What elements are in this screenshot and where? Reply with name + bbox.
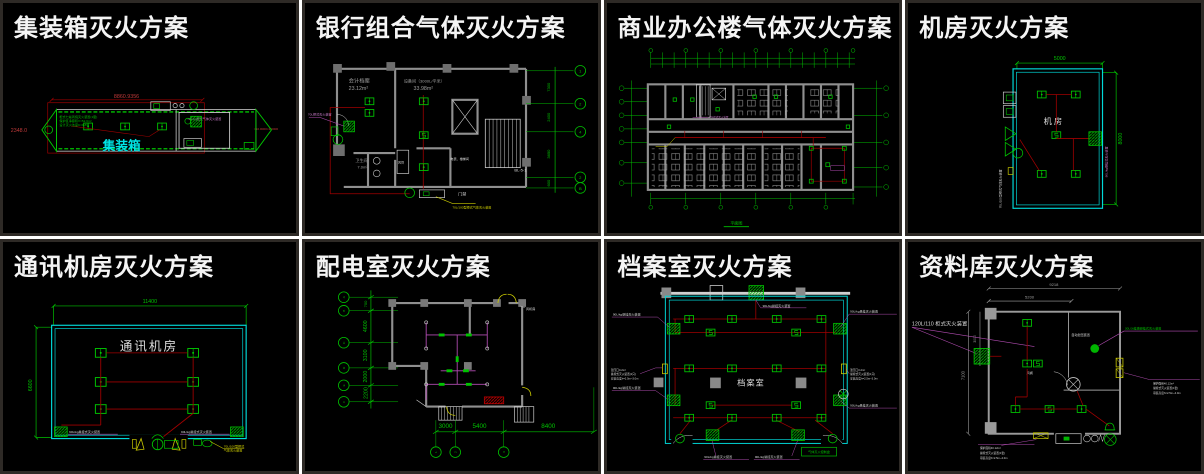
axis-bubble: 2 <box>453 451 457 453</box>
door-label: 门禁 <box>458 191 466 197</box>
piping: 风阀 <box>990 319 1110 426</box>
dim-right: 8000 <box>1118 133 1124 145</box>
label-left-mid: 泄压口0.2m² <box>610 367 625 371</box>
note-bottom: 吊装高度h=2.5m~4.0m <box>980 455 1008 459</box>
panel-container[interactable]: 集装箱灭火方案 8860.9356 2348.0 ≈10.0000×1.0000 <box>0 0 299 236</box>
axis-dim: 3100 <box>363 349 369 361</box>
note-bottom: 保护面积40.12m² <box>980 446 1001 450</box>
dimensions: 8860.9356 2348.0 ≈10.0000×1.0000 <box>11 94 279 153</box>
device-label-left: 70L/100型柜式气体灭火装置 <box>998 169 1003 208</box>
door-note-line1: 70L/100型柜式 <box>224 443 245 448</box>
device-label-right: 90L/kg悬挂式灭火装置 <box>1104 146 1109 177</box>
panel-power-room[interactable]: 配电室灭火方案 A B C D E F 700 4600 3100 2000 2… <box>302 239 601 474</box>
walls: 风机房 <box>388 294 535 422</box>
door-arc <box>446 406 455 415</box>
panel-bank[interactable]: 银行组合气体灭火方案 会计档案 23.12m² 设备间（3000L/ <box>302 0 601 236</box>
panel-data-room[interactable]: 资料库灭火方案 9218 5200 7100 3000 <box>905 239 1204 474</box>
label-left-bottom: 90L/kg悬挂灭火装置 <box>612 385 640 390</box>
room3-name: 卫生间 <box>355 157 367 163</box>
dimensions: 5000 8000 <box>1015 56 1124 206</box>
axis-dim: 700 <box>363 299 368 306</box>
piping <box>61 348 198 436</box>
dim-top: 11400 <box>143 299 157 305</box>
room-labels: 会计档案 23.12m² 设备间（3000L/平米） 33.98m² 卫生间 7… <box>348 76 527 196</box>
axis-bubble: B <box>579 186 582 191</box>
device-label-left: 90L/kg悬挂式灭火装置 <box>69 428 100 433</box>
dim-top-inner: 5200 <box>1025 294 1035 299</box>
note-line: 设计灭火浓度C=9.8% <box>59 122 89 127</box>
note-bottom: 悬挂式灭火装置(1套) <box>980 451 1005 455</box>
door-arc <box>522 387 531 396</box>
ref-label: BL-5-1 <box>514 167 527 172</box>
hatched-device <box>191 116 202 127</box>
label-right-mid: 安装高度h=2.5m~3.0m <box>850 376 878 380</box>
room-label: 通讯机房 <box>120 338 178 353</box>
control-label: 气体灭火控制盘 <box>808 449 830 454</box>
axis-bubble: D <box>342 366 346 369</box>
axis-bubble: A <box>342 295 346 298</box>
cabinet-label: 120L/110 柜式灭火装置 <box>912 319 968 327</box>
panel-title: 集装箱灭火方案 <box>14 8 189 43</box>
dim-left-inner: 3000 <box>973 334 977 342</box>
left-axis: A B C D E F 700 4600 3100 2000 2200 <box>338 290 398 408</box>
piping: 90L/kg悬挂式灭火装置 <box>1020 91 1109 177</box>
room2-area: 33.98m² <box>413 86 433 92</box>
piping <box>330 95 428 194</box>
vent-grille <box>484 396 503 403</box>
panel-machine-room[interactable]: 机房灭火方案 5000 8000 机房 90L/kg悬挂式灭火 <box>905 0 1204 236</box>
bottom-devices: 保护面积40.12m² 悬挂式灭火装置(1套) 吊装高度h=2.5m~4.0m <box>978 423 1116 460</box>
room-label: 机房 <box>1044 116 1064 126</box>
label-left-mid: 安装高度h=2.5m~3.0m <box>610 376 638 380</box>
axis-dim: 2400 <box>546 112 551 122</box>
label-top: 90L/kg悬挂灭火装置 <box>762 302 790 307</box>
walls <box>985 307 1120 435</box>
room1-name: 会计档案 <box>348 76 370 84</box>
panel-archive[interactable]: 档案室灭火方案 档案室 <box>604 239 903 474</box>
label-right-mid: 泄压口0.2m² <box>850 367 865 371</box>
damper-label: 风阀 <box>1027 370 1033 375</box>
door-and-devices: 70L/100型柜式气体灭火装置 <box>998 92 1023 208</box>
room-label: 档案室 <box>737 377 765 387</box>
drawing-board: 集装箱灭火方案 8860.9356 2348.0 ≈10.0000×1.0000 <box>0 0 1204 474</box>
piping <box>673 300 835 434</box>
door-note-line2: 气体灭火装置 <box>224 447 243 452</box>
bottom-dim: 8400 <box>541 422 555 429</box>
fan-room-label: 风机房 <box>526 305 535 310</box>
axis-bubble: C <box>342 340 346 343</box>
panel-title: 档案室灭火方案 <box>618 247 793 282</box>
axis-bubble: E <box>342 384 346 386</box>
panel-comm-room[interactable]: 通讯机房灭火方案 11400 6600 通讯机房 <box>0 239 299 474</box>
note-right: 保护面积40.12m² <box>1153 381 1174 385</box>
axis-bubble: B <box>342 309 346 311</box>
duct-label: 风管 <box>398 160 404 165</box>
hatched-device <box>344 121 355 132</box>
hatched-device <box>748 285 763 300</box>
axis-dim: 3650 <box>546 149 551 159</box>
dimensions: 11400 6600 <box>28 299 248 440</box>
axis-dim: 2200 <box>363 387 369 399</box>
axis-dim: 7300 <box>546 82 551 92</box>
label-right-mid: 悬挂式灭火装置(1只) <box>850 372 875 376</box>
vent-label: 自动泄压装置 <box>1072 331 1091 336</box>
axis-bubble: 2 <box>579 102 582 107</box>
axis-bubble: 3 <box>502 451 506 453</box>
caption-text: 平面图 <box>730 220 742 226</box>
hatched-device <box>231 426 244 436</box>
label-right-top: 90L/kg悬挂灭火装置 <box>850 308 878 313</box>
axis-bubble: 1 <box>434 451 438 453</box>
dim-right: ≈10.0000×1.0000 <box>254 127 278 131</box>
notes: 柜式七氟丙烷灭火装置(1套) 保护区净容积V=52.6m³ 设计灭火浓度C=9.… <box>59 114 97 127</box>
axis-bubble: 2 <box>579 175 582 180</box>
axis-dim: 600 <box>546 179 551 186</box>
bottom-axis: 3000 5400 8400 1 2 3 <box>430 387 596 457</box>
stairs <box>485 119 520 167</box>
bottom-dim: 5400 <box>472 422 486 429</box>
panel-title: 商业办公楼气体灭火方案 <box>618 8 893 43</box>
axis-bubble: 4 <box>579 130 582 135</box>
dim-left-outer: 7100 <box>961 370 966 380</box>
label-bottom-right: 90L/kg悬挂灭火装置 <box>754 453 782 458</box>
hatched-device <box>1089 132 1102 146</box>
dim-left: 6600 <box>28 379 34 391</box>
dim-left: 2348.0 <box>11 128 27 134</box>
bottom-dim: 3000 <box>438 422 452 429</box>
dim-top: 8860.9356 <box>114 94 139 100</box>
right-wall-devices: 保护面积40.12m² 悬挂式灭火装置(1套) 吊装高度h=2.5m~4.0m <box>1116 358 1200 395</box>
axis-dim: 4600 <box>363 320 369 332</box>
device-label: 70L柜式灭火装置 <box>709 115 729 119</box>
panel-title: 配电室灭火方案 <box>316 247 491 282</box>
vent-annotation: 自动泄压装置 30L/3t挂墙悬挂式灭火装置 <box>1072 325 1198 352</box>
axis-dim: 2000 <box>363 370 369 382</box>
axis-bubble: F <box>342 400 346 402</box>
label-left-top: 90L/kg悬挂灭火装置 <box>612 311 640 316</box>
room2-name: 设备间（3000L/平米） <box>404 77 445 83</box>
panel-title: 通讯机房灭火方案 <box>14 247 214 282</box>
room-label: 集装箱 <box>102 138 141 153</box>
note-right: 吊装高度h=2.5m~4.0m <box>1153 391 1181 395</box>
device-label-left: 70L柜式灭火装置 <box>308 111 332 116</box>
label-left-mid: 悬挂式灭火装置(1只) <box>610 372 635 376</box>
meter-label: 电表、楼梯间 <box>450 156 469 161</box>
caption: 平面图 <box>723 220 748 227</box>
device-label-right: 90L/kg悬挂式灭火装置 <box>181 428 212 433</box>
panel-title: 银行组合气体灭火方案 <box>316 8 566 43</box>
furniture <box>651 86 838 187</box>
device-label-bottom: 70L/100型柜式气体灭火装置 <box>452 204 491 209</box>
axis-grid: 1 2 4 2 B 7300 2400 3650 600 <box>526 65 586 193</box>
panel-title: 资料库灭火方案 <box>919 247 1094 282</box>
panel-office[interactable]: 商业办公楼气体灭火方案 <box>604 0 903 236</box>
dim-top: 5000 <box>1054 56 1066 62</box>
hanging-label: 30L/3t挂墙悬挂式灭火装置 <box>1125 325 1162 330</box>
note-right: 悬挂式灭火装置(1套) <box>1153 386 1178 390</box>
equipment-compartment: 70L/kg柜式气体灭火装置 <box>179 112 254 149</box>
panel-title: 机房灭火方案 <box>919 8 1069 43</box>
hatched-device <box>55 426 68 436</box>
axis-bubble: 1 <box>579 69 582 74</box>
label-right-bottom: 90L/kg悬挂灭火装置 <box>850 402 878 407</box>
hatched-device <box>974 348 990 363</box>
room1-area: 23.12m² <box>348 86 368 92</box>
label-bottom-left: 90L/kg悬挂灭火装置 <box>704 453 732 458</box>
dim-top-outer: 9218 <box>1050 282 1060 287</box>
room3-area: 7.0m² <box>357 165 368 170</box>
